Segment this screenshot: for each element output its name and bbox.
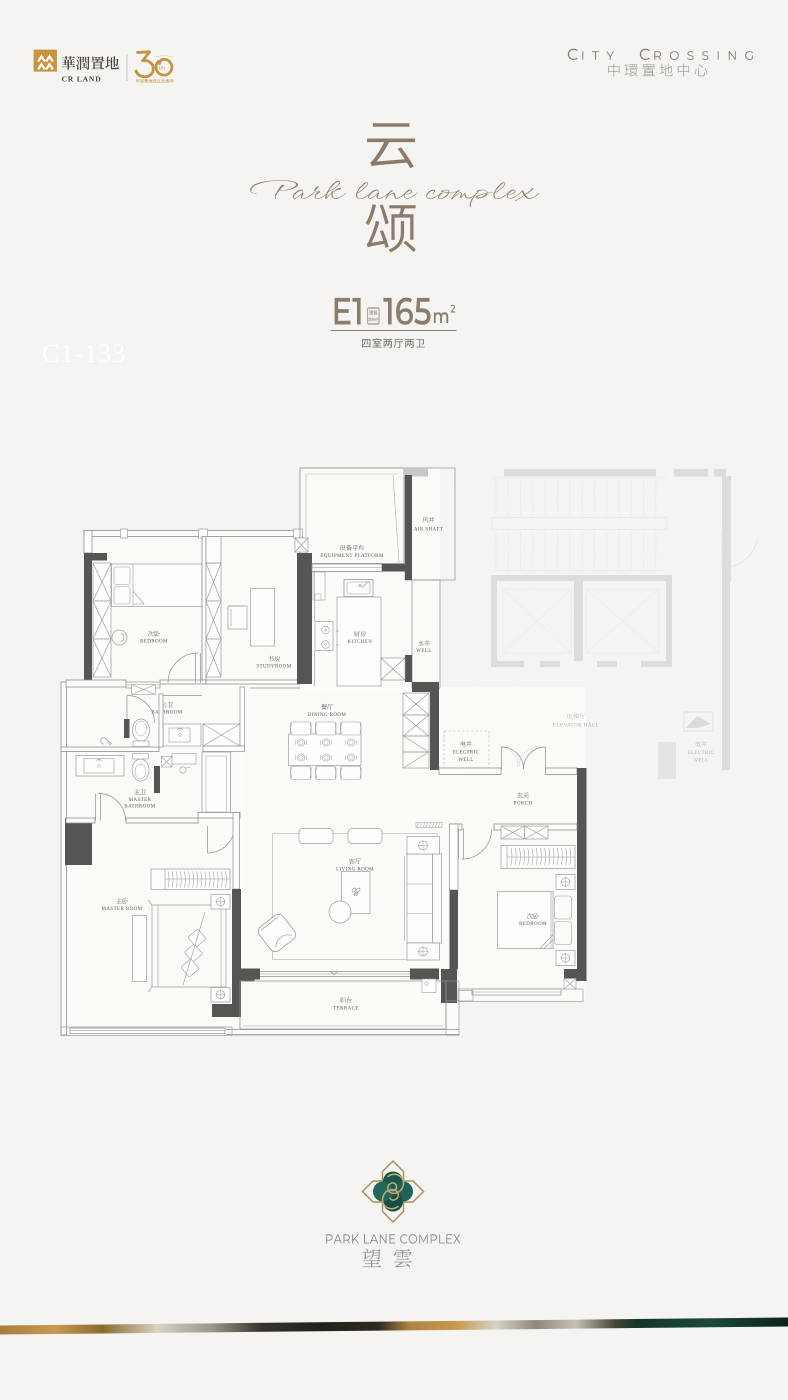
svg-text:CR LAND: CR LAND (62, 75, 102, 84)
svg-text:BEDROOM: BEDROOM (140, 640, 168, 645)
svg-text:WELL: WELL (458, 758, 473, 763)
svg-text:WELL: WELL (693, 759, 708, 764)
svg-text:ELEVATOR HALL: ELEVATOR HALL (553, 723, 599, 729)
svg-text:DINING ROOM: DINING ROOM (308, 713, 347, 718)
svg-text:BATHROOM: BATHROOM (124, 805, 155, 810)
svg-text:MASTER ROOM: MASTER ROOM (102, 907, 143, 912)
svg-text:BATHROOM: BATHROOM (151, 711, 182, 716)
svg-text:ELECTRIC: ELECTRIC (453, 751, 480, 756)
svg-text:EQUIPMENT PLATFORM: EQUIPMENT PLATFORM (320, 554, 384, 559)
svg-text:STUDYROOM: STUDYROOM (256, 665, 291, 670)
svg-text:AIR SHAFT: AIR SHAFT (414, 528, 443, 533)
svg-text:MASTER: MASTER (129, 798, 152, 803)
svg-text:BEDROOM: BEDROOM (519, 922, 547, 927)
svg-text:PORCH: PORCH (514, 802, 533, 807)
svg-text:KITCHEN: KITCHEN (348, 640, 373, 645)
svg-text:C1-133: C1-133 (42, 339, 126, 368)
svg-text:WELL: WELL (416, 649, 431, 654)
svg-text:ELECTRIC: ELECTRIC (687, 751, 714, 756)
svg-text:TERRACE: TERRACE (333, 1007, 359, 1012)
